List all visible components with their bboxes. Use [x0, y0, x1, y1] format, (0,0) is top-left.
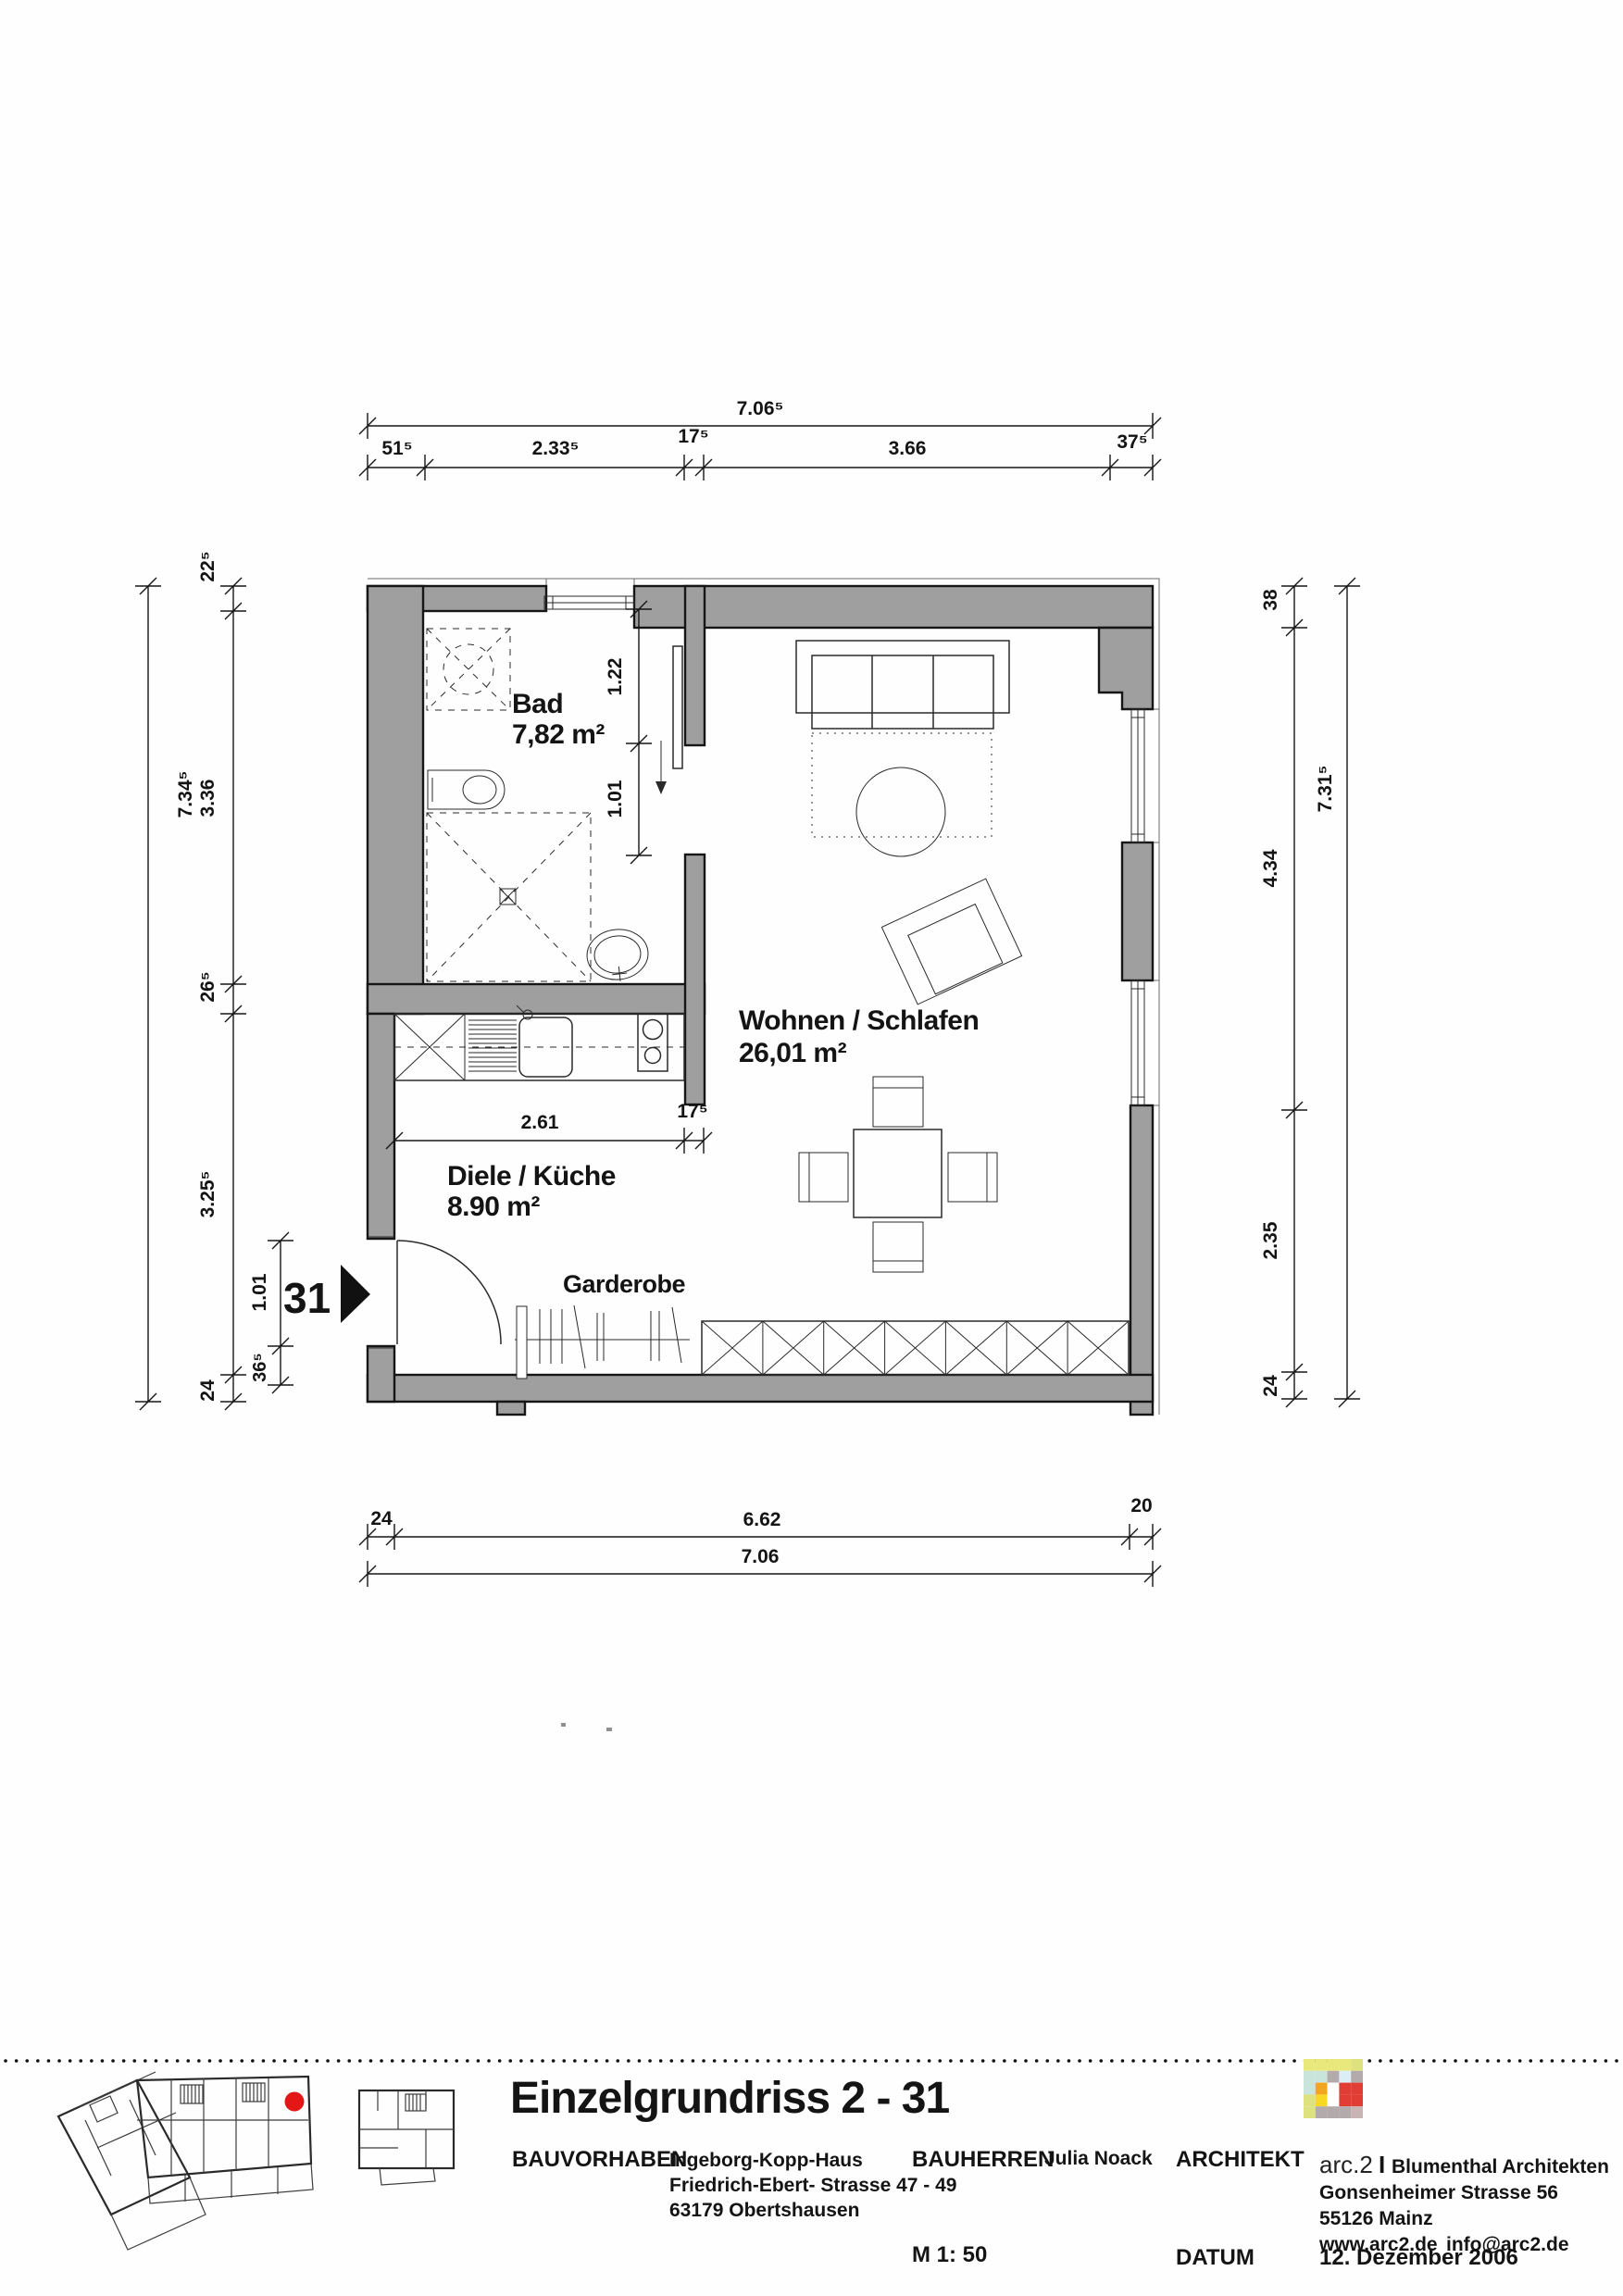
rug	[812, 733, 992, 837]
dim-top-seg-2: 17⁵	[678, 426, 708, 447]
unit-location-dot	[285, 2092, 305, 2112]
logo-pixel	[1304, 2083, 1316, 2095]
sofa	[796, 641, 1009, 729]
dim-bad-door-0: 1.22	[605, 658, 626, 696]
title-block: Einzelgrundriss 2 - 31 BAUVORHABEN Ingeb…	[510, 2059, 1609, 2270]
wall-right-lower	[1130, 1105, 1153, 1415]
project-city: 63179 Obertshausen	[669, 2200, 859, 2221]
dim-right-total: 7.31⁵	[1315, 766, 1336, 813]
chair-bottom	[873, 1222, 923, 1272]
firm-street: Gonsenheimer Strasse 56	[1319, 2182, 1558, 2203]
wall-bottom	[368, 1375, 1153, 1402]
dim-right-seg-0: 38	[1260, 589, 1281, 611]
dining-table	[854, 1129, 942, 1217]
floor-plan-svg: 7.06⁵ 51⁵ 2.33⁵ 17⁵ 3.66 37⁵ 24 6.62 20 …	[0, 0, 1623, 2296]
arc2-logo	[1304, 2059, 1363, 2118]
dim-kitchen-1: 17⁵	[677, 1101, 707, 1122]
dim-left-seg-0: 22⁵	[197, 551, 218, 581]
logo-pixel	[1351, 2106, 1363, 2118]
logo-pixel	[1351, 2059, 1363, 2071]
dim-right-seg-1: 4.34	[1260, 849, 1281, 887]
window-right-2	[1131, 980, 1144, 1105]
dim-left-seg-4: 24	[197, 1379, 218, 1402]
sink	[517, 1005, 572, 1077]
toilet	[584, 927, 650, 985]
dim-left-total: 7.34⁵	[175, 771, 196, 818]
dim-top-seg-4: 37⁵	[1117, 431, 1147, 453]
wall-left-below-door	[368, 1346, 394, 1402]
wardrobe	[702, 1321, 1129, 1375]
logo-pixel	[1316, 2083, 1328, 2095]
logo-pixel	[1339, 2071, 1351, 2083]
dim-entry-1: 36⁵	[250, 1353, 270, 1382]
dim-kitchen-0: 2.61	[521, 1112, 559, 1133]
garderobe-label: Garderobe	[563, 1270, 686, 1298]
bauherren-label: BAUHERREN	[912, 2147, 1054, 2172]
overview-plan-b	[359, 2090, 454, 2185]
entrance-marker: 31	[283, 1265, 370, 1323]
room-bad-area: 7,82 m²	[512, 719, 605, 750]
fridge	[394, 1014, 465, 1080]
scale-label: M 1: 50	[912, 2242, 987, 2267]
kitchen-counter	[394, 1005, 684, 1080]
room-wohnen-area: 26,01 m²	[739, 1038, 847, 1068]
stove	[638, 1014, 668, 1071]
furniture	[796, 641, 1022, 1272]
entrance-arrow-icon	[341, 1265, 370, 1323]
logo-pixel	[1304, 2094, 1316, 2106]
logo-pixel	[1328, 2106, 1340, 2118]
dim-top-total: 7.06⁵	[737, 398, 784, 419]
logo-pixel	[1351, 2094, 1363, 2106]
dim-top-seg-1: 2.33⁵	[532, 438, 580, 459]
wall-diele-wohnen	[685, 855, 705, 1104]
dim-right-seg-2: 2.35	[1260, 1221, 1281, 1259]
logo-pixel	[1316, 2059, 1328, 2071]
coat-rack	[515, 1305, 690, 1379]
dim-entry-0: 1.01	[249, 1273, 270, 1311]
firm-prefix: arc.2	[1319, 2151, 1373, 2178]
logo-pixel	[1316, 2106, 1328, 2118]
chair-top	[873, 1077, 923, 1127]
wall-corner-notch	[1099, 628, 1153, 709]
logo-pixel	[1328, 2083, 1340, 2095]
datum-label: DATUM	[1176, 2245, 1255, 2270]
dim-top-seg-3: 3.66	[889, 438, 927, 459]
logo-pixel	[1328, 2094, 1340, 2106]
sink-drainer	[468, 1020, 517, 1071]
logo-pixel	[1339, 2059, 1351, 2071]
wall-left-upper	[368, 586, 423, 1014]
dim-bottom-seg-0: 24	[370, 1508, 393, 1529]
bad-window	[544, 596, 634, 609]
chair-left	[799, 1153, 848, 1202]
firm-city: 55126 Mainz	[1319, 2208, 1433, 2229]
dim-bottom-seg-2: 20	[1130, 1495, 1152, 1516]
logo-pixel	[1339, 2106, 1351, 2118]
unit-number: 31	[283, 1274, 331, 1322]
armchair	[881, 879, 1021, 1004]
dimension-line	[1334, 578, 1360, 1407]
logo-pixel	[1351, 2083, 1363, 2095]
firm-separator: I	[1379, 2151, 1385, 2178]
dim-bottom-seg-1: 6.62	[743, 1509, 781, 1530]
coffee-table	[856, 767, 945, 856]
dimension-line	[359, 455, 1161, 480]
architekt-label: ARCHITEKT	[1176, 2147, 1305, 2172]
washbasin	[428, 770, 505, 809]
logo-pixel	[1316, 2071, 1328, 2083]
logo-pixel	[1351, 2071, 1363, 2083]
room-diele-name: Diele / Küche	[447, 1161, 616, 1192]
entry-door	[368, 1237, 501, 1348]
dim-bad-door-1: 1.01	[605, 780, 626, 817]
plan-sheet: 7.06⁵ 51⁵ 2.33⁵ 17⁵ 3.66 37⁵ 24 6.62 20 …	[0, 0, 1623, 2296]
logo-pixel	[1304, 2059, 1316, 2071]
logo-pixel	[1328, 2059, 1340, 2071]
logo-pixel	[1304, 2106, 1316, 2118]
dim-bottom-total: 7.06	[742, 1546, 780, 1567]
firm-name: Blumenthal Architekten	[1392, 2156, 1609, 2177]
logo-pixel	[1339, 2094, 1351, 2106]
wall-top-right	[634, 586, 1153, 628]
dim-left-seg-3: 3.25⁵	[197, 1171, 218, 1218]
project-street: Friedrich-Ebert- Strasse 47 - 49	[669, 2175, 956, 2196]
dining-set	[799, 1077, 997, 1272]
date-value: 12. Dezember 2006	[1319, 2245, 1518, 2270]
dimension-line	[220, 578, 246, 1410]
window-right-1	[1131, 709, 1144, 842]
sheet-title: Einzelgrundriss 2 - 31	[510, 2074, 949, 2123]
dim-left-seg-1: 3.36	[197, 780, 218, 817]
room-bad-name: Bad	[512, 689, 563, 719]
dimension-line	[135, 578, 161, 1410]
logo-pixel	[1316, 2094, 1328, 2106]
bad-sliding-door	[655, 646, 682, 794]
room-diele-area: 8.90 m²	[447, 1192, 540, 1222]
wall-window-pier	[1122, 842, 1153, 980]
client-name: Julia Noack	[1044, 2148, 1153, 2169]
wall-stub-below	[497, 1402, 525, 1415]
dimension-line	[626, 601, 652, 864]
logo-pixel	[1328, 2071, 1340, 2083]
wall-bad-diele	[368, 984, 705, 1014]
arrow-down-icon	[655, 781, 667, 794]
dim-right-seg-3: 24	[1260, 1375, 1281, 1397]
room-wohnen-name: Wohnen / Schlafen	[739, 1005, 979, 1036]
overview-plan-a	[58, 2072, 313, 2250]
dim-left-seg-2: 26⁵	[197, 971, 218, 1002]
bauvorhaben-label: BAUVORHABEN	[512, 2147, 687, 2172]
shower	[427, 629, 510, 710]
wall-bad-right	[685, 586, 705, 745]
dimension-line	[1281, 578, 1307, 1407]
chair-right	[948, 1153, 997, 1202]
project-name: Ingeborg-Kopp-Haus	[669, 2150, 863, 2171]
stair-hatch-icon-b	[406, 2094, 426, 2111]
logo-pixel	[1339, 2083, 1351, 2095]
dim-top-seg-0: 51⁵	[381, 438, 412, 459]
scan-specks	[561, 1723, 612, 1731]
wall-left-middle	[368, 1014, 394, 1239]
shower-area-dashed	[427, 813, 591, 981]
logo-pixel	[1304, 2071, 1316, 2083]
